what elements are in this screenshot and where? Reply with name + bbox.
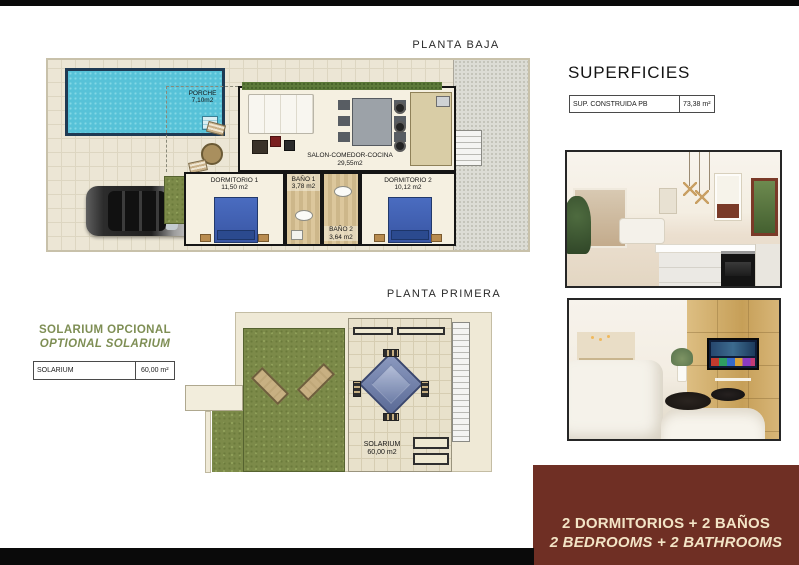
spec-row-value: 73,38 m² [679, 96, 715, 112]
bar-stool [394, 140, 406, 152]
bed [388, 197, 432, 243]
spec-row-label: SOLARIUM [34, 362, 135, 379]
terrace-chair [383, 349, 399, 357]
photo2-chaise [661, 408, 765, 441]
room-label-dormitorio1: DORMITORIO 1 11,50 m2 [186, 174, 283, 192]
planter-bench [353, 327, 393, 335]
superficies-table: SUP. CONSTRUIDA PB 73,38 m² [569, 95, 715, 113]
planter-box [413, 453, 449, 465]
hedge [242, 82, 442, 90]
photo2-tv-apps [711, 358, 755, 366]
superficies-title: SUPERFICIES [568, 63, 690, 83]
red-pouf [270, 136, 281, 147]
room-name-text: BAÑO 1 [287, 176, 320, 183]
dining-chairs-left [338, 100, 350, 144]
first-floor-plan: SOLARIUM 60,00 m2 [185, 312, 492, 479]
photo1-cabinet-right [755, 244, 780, 286]
sun-lounger [297, 363, 335, 401]
photo1-window [715, 174, 741, 220]
room-area-text: 29,55m2 [280, 160, 420, 167]
banner-line-en: 2 BEDROOMS + 2 BATHROOMS [550, 534, 782, 551]
sun-lounger [251, 367, 289, 405]
room-name-text: DORMITORIO 2 [362, 177, 454, 184]
bar-stool [394, 121, 406, 133]
photo2-pendant-lights [591, 336, 594, 339]
terrace-chair [353, 381, 361, 397]
photo1-plant [565, 196, 591, 254]
photo2-sofa [567, 360, 663, 441]
porch-chair [206, 121, 226, 136]
room-dormitorio2: DORMITORIO 2 10,12 m2 [360, 172, 456, 246]
photo1-pendant-cord [709, 152, 710, 190]
solarium-terrace: SOLARIUM 60,00 m2 [348, 318, 452, 472]
solarium-table: SOLARIUM 60,00 m² [33, 361, 175, 380]
sink [291, 230, 303, 240]
car-roof [108, 191, 166, 231]
bed [214, 197, 258, 243]
toilet [295, 210, 313, 221]
photo1-oven-glass [725, 262, 751, 276]
nightstand [200, 234, 211, 242]
lawn-main [243, 328, 345, 472]
room-label-porche: PORCHE 7,10m2 [167, 87, 238, 105]
top-black-bar [0, 0, 799, 6]
bed-pillows [217, 230, 255, 240]
lawn-lower-left [212, 411, 243, 472]
nightstand [258, 234, 269, 242]
lawn-strip [164, 176, 186, 224]
solarium-optional-title-en: OPTIONAL SOLARIUM [25, 338, 185, 350]
bar-stool [394, 102, 406, 114]
ground-floor-title: PLANTA BAJA [396, 39, 516, 51]
bed-pillows [391, 230, 429, 240]
toilet [334, 186, 352, 197]
photo1-sofa [619, 218, 665, 244]
room-porche: PORCHE 7,10m2 [166, 86, 238, 172]
photo1-pendant-cord [699, 152, 700, 194]
room-name-text: BAÑO 2 [324, 226, 358, 233]
room-dormitorio1: DORMITORIO 1 11,50 m2 [184, 172, 285, 246]
room-bano1: BAÑO 1 3,78 m2 [285, 172, 322, 246]
black-pouf [284, 140, 295, 151]
kitchen-sink [436, 96, 450, 107]
spec-row-value: 60,00 m² [135, 362, 174, 379]
room-area-text: 60,00 m2 [351, 449, 413, 457]
room-area-text: 7,10m2 [167, 97, 238, 104]
photo1-cabinets [659, 253, 721, 286]
solarium-optional-title-es: SOLARIUM OPCIONAL [25, 324, 185, 336]
photo2-tv-image [711, 342, 755, 356]
pergola-table [358, 351, 423, 416]
nightstand [431, 234, 442, 242]
bottom-black-bar [0, 548, 534, 565]
room-name-text: DORMITORIO 1 [186, 177, 283, 184]
planter-bench [397, 327, 445, 335]
room-area-text: 3,78 m2 [287, 183, 320, 190]
terrace-chair [383, 413, 399, 421]
parapet-wall [205, 411, 211, 473]
room-name-text: PORCHE [167, 90, 238, 97]
stair-bulkhead [185, 385, 243, 411]
photo1-oven [721, 251, 755, 286]
room-salon: SALON-COMEDOR-COCINA 29,55m2 [238, 86, 456, 172]
sofa [248, 94, 314, 134]
banner-line-es: 2 DORMITORIOS + 2 BAÑOS [562, 515, 770, 532]
photo1-wood-pendant [695, 190, 709, 204]
room-label-dormitorio2: DORMITORIO 2 10,12 m2 [362, 174, 454, 192]
photo2-side-table [711, 388, 745, 401]
terrace-chair [421, 381, 429, 397]
photo2-coffee-table [665, 392, 711, 410]
coffee-table [252, 140, 268, 154]
room-area-text: 3,64 m2 [324, 234, 358, 241]
planter-box [413, 437, 449, 449]
photo2-vase-plant [671, 348, 693, 366]
room-label-solarium: SOLARIUM 60,00 m2 [351, 441, 413, 457]
photo1-pendant-cord [689, 152, 690, 186]
room-name-text: SOLARIUM [351, 441, 413, 449]
pergola-table-top [371, 364, 411, 404]
room-name-text: SALON-COMEDOR-COCINA [280, 152, 420, 159]
photo1-window-sill [717, 204, 739, 218]
solarium-stairs [452, 322, 470, 442]
photo2-shelf [715, 378, 751, 381]
photo2-tv [707, 338, 759, 370]
room-bano2: BAÑO 2 3,64 m2 [322, 172, 360, 246]
ground-floor-plan: PORCHE 7,10m2 SALON-COMEDOR- [46, 58, 530, 252]
spec-row-label: SUP. CONSTRUIDA PB [570, 96, 679, 112]
features-banner: 2 DORMITORIOS + 2 BAÑOS 2 BEDROOMS + 2 B… [533, 465, 799, 565]
dining-table [352, 98, 392, 146]
room-area-text: 11,50 m2 [186, 184, 283, 191]
first-floor-title: PLANTA PRIMERA [384, 288, 504, 300]
room-area-text: 10,12 m2 [362, 184, 454, 191]
nightstand [374, 234, 385, 242]
room-label-bano1: BAÑO 1 3,78 m2 [287, 174, 320, 191]
photo2-vase [677, 364, 687, 382]
photo1-garden-window [751, 178, 778, 236]
photo1-wall-art [659, 188, 677, 214]
photo-living-kitchen [565, 150, 782, 288]
room-label-salon: SALON-COMEDOR-COCINA 29,55m2 [280, 152, 420, 167]
room-label-bano2: BAÑO 2 3,64 m2 [324, 226, 358, 241]
brochure-page: PLANTA BAJA PORCHE 7,10m2 [0, 0, 799, 565]
photo-living-tv [567, 298, 781, 441]
